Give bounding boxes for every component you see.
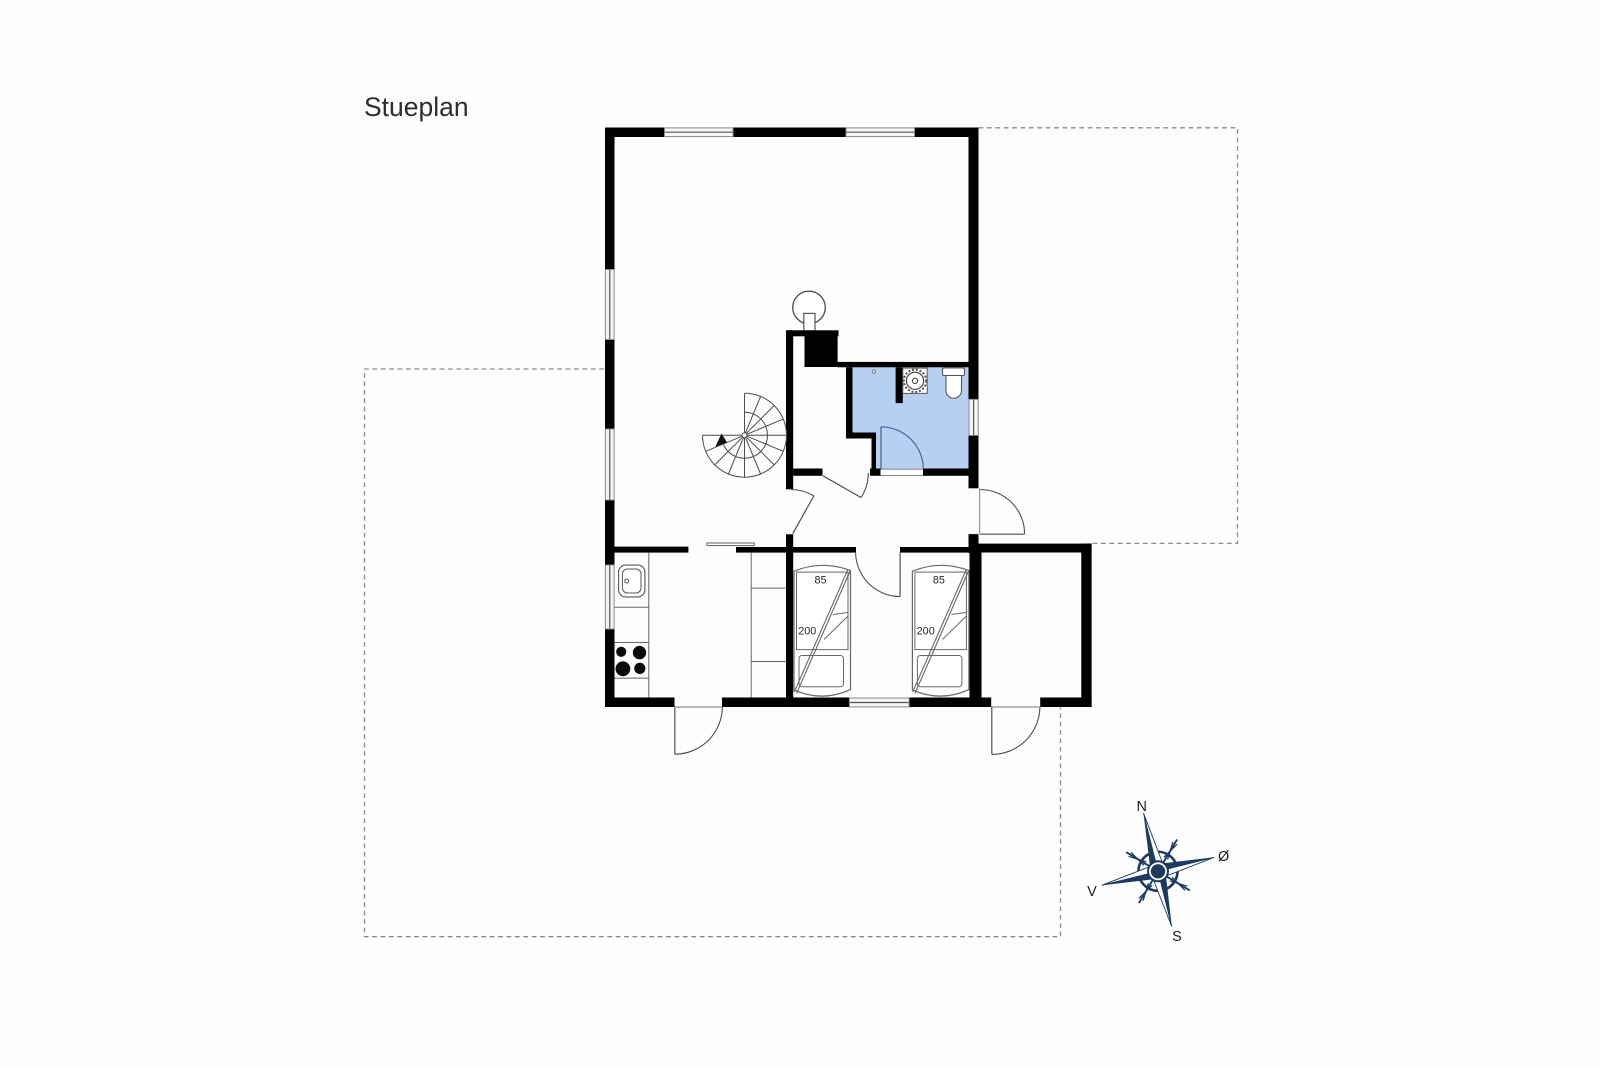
svg-text:S: S xyxy=(1172,929,1182,945)
svg-text:Stueplan: Stueplan xyxy=(364,92,469,122)
svg-text:85: 85 xyxy=(814,574,826,586)
svg-text:V: V xyxy=(1087,884,1097,900)
svg-text:85: 85 xyxy=(933,574,945,586)
svg-text:N: N xyxy=(1137,799,1147,815)
svg-text:200: 200 xyxy=(917,625,935,637)
svg-text:200: 200 xyxy=(798,625,816,637)
svg-text:Ø: Ø xyxy=(1218,849,1229,865)
